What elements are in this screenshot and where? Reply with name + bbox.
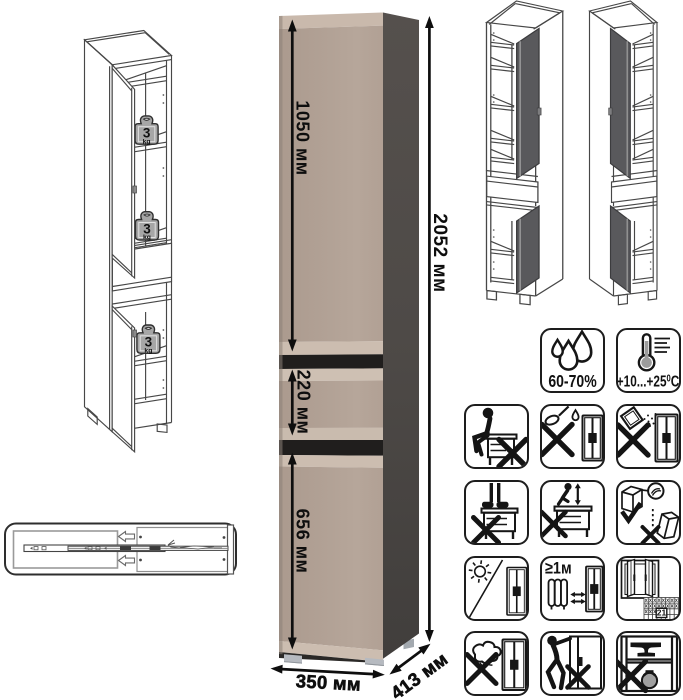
- svg-text:kg: kg: [143, 138, 151, 145]
- svg-text:21: 21: [657, 607, 667, 617]
- svg-text:kg: kg: [144, 348, 152, 355]
- svg-text:656 мм: 656 мм: [293, 509, 313, 574]
- svg-text:60-70%: 60-70%: [548, 371, 596, 391]
- svg-text:+10...+250C: +10...+250C: [618, 372, 679, 389]
- svg-text:kg: kg: [143, 234, 151, 241]
- svg-text:220 мм: 220 мм: [294, 370, 314, 435]
- svg-text:350 мм: 350 мм: [295, 670, 361, 695]
- svg-text:413 мм: 413 мм: [387, 648, 452, 700]
- svg-text:≥1м: ≥1м: [545, 559, 572, 577]
- svg-text:1050 мм: 1050 мм: [293, 100, 313, 175]
- svg-text:2052 мм: 2052 мм: [429, 213, 450, 292]
